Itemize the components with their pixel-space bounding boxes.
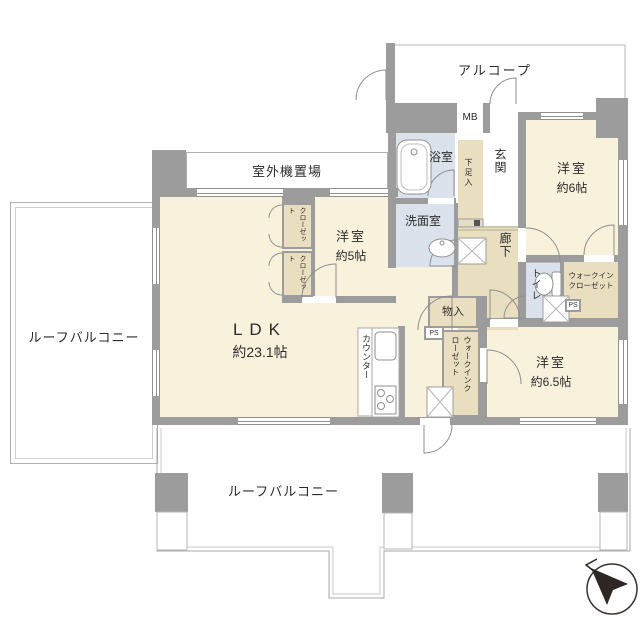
bath-label: 浴室 [429,148,453,165]
roof-balcony-bottom-outline [157,428,630,598]
closet-upper-label: クローゼット [286,207,308,245]
window [152,228,160,284]
washroom-label: 洗面室 [392,212,454,229]
entrance-floor [483,133,518,226]
bedroom5-name: 洋室 [314,226,388,245]
wall-segment [526,255,584,262]
shoe-box-label: 下足入 [463,158,474,188]
room-bath [392,133,455,198]
entrance-label: 玄関 [492,148,509,174]
toilet-label: トイレ [527,268,542,301]
wall-segment [386,43,395,103]
window [152,350,160,396]
closet-lower-label: クローゼット [286,255,308,293]
wic-ne-label-line2: クローゼット [564,280,618,291]
wall-segment [386,103,457,133]
window [238,417,330,425]
window [197,188,283,197]
bedroom6-label: 洋室 約6帖 [526,158,618,196]
front-door-arc [490,78,516,104]
door-opening [584,255,614,262]
ldk-size: 約23.1帖 [180,342,340,362]
hallway-label: 廊下 [497,232,514,258]
bedroom65-size: 約6.5帖 [487,373,615,390]
entrance-door-opening [490,104,518,133]
alcove-label: アルコープ [458,60,532,79]
ldk-name: LDK [180,320,340,340]
service-door-arc [356,70,386,100]
window [618,340,628,404]
compass-icon [586,559,637,614]
pillar [152,150,186,190]
door-opening [490,319,518,327]
wall-segment [483,103,490,133]
window [618,160,628,225]
wall-segment [518,112,526,318]
window [520,417,596,425]
bedroom5-label: 洋室 約5帖 [314,226,388,264]
roof-balcony-left-label: ルーフバルコニー [22,327,146,346]
pipe-space-2: PS [565,299,581,312]
wall-segment [398,326,405,417]
kitchen-counter-label: カウンター [360,334,373,379]
wall-segment [452,265,458,296]
wall-segment [454,203,458,265]
door-opening [420,418,450,425]
pipe-space-1: PS [424,326,444,340]
floor-plan: ルーフバルコニー 室外機置場 アルコープ [0,0,640,640]
room-ldk [160,197,282,417]
outdoor-unit-space-label: 室外機置場 [186,161,388,180]
storage-small-label: 物入 [428,303,478,319]
bedroom5-size: 約5帖 [314,247,388,264]
balcony-pillars [155,473,628,550]
door-opening [302,296,336,303]
door-opening [428,198,454,204]
window [330,188,388,197]
bedroom6-size: 約6帖 [526,179,618,196]
roof-balcony-bottom-label: ルーフバルコニー [228,481,339,500]
window [541,112,583,120]
ldk-label: LDK 約23.1帖 [180,320,340,362]
wall-segment [282,296,396,303]
bedroom6-name: 洋室 [526,158,618,177]
door-opening [518,228,526,262]
wic-center-label: ウォークインクローゼット [449,336,473,398]
meter-box-label: MB [457,112,483,123]
wall-segment [614,255,618,262]
bedroom65-name: 洋室 [487,352,615,371]
bedroom65-label: 洋室 約6.5帖 [487,352,615,390]
balcony-door-arc [424,425,452,453]
